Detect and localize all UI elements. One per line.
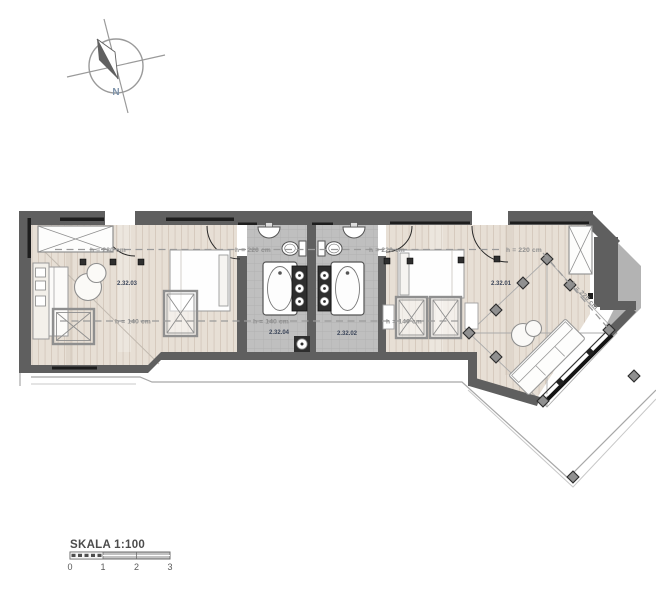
floor-drain <box>294 336 310 352</box>
h220-label-bath-right: h = 220 cm <box>369 247 405 254</box>
wardrobe-right <box>569 226 592 274</box>
side-table-circle-small <box>526 321 542 337</box>
room-label-2-32-04: 2.32.04 <box>269 330 290 336</box>
h140-label-room-right: h = 140 cm <box>386 319 422 326</box>
toilet <box>318 241 342 256</box>
scale-tick-3: 3 <box>167 562 172 572</box>
scale-title: SKALA 1:100 <box>70 539 145 551</box>
vanity-counter <box>33 263 68 339</box>
floor-plan-drawing: h = 220 cm h = 220 cm h = 220 cm h = 220… <box>0 0 656 592</box>
room-label-2-32-02: 2.32.02 <box>337 331 358 337</box>
bench-right <box>465 303 478 329</box>
scale-tick-0: 0 <box>67 562 72 572</box>
chest-bed-right-1 <box>396 297 427 338</box>
h220-label-bath-left: h = 220 cm <box>235 247 271 254</box>
scale-bar: SKALA 1:100 0 1 2 3 <box>67 539 172 572</box>
h140-label-room-left: h = 140 cm <box>115 319 151 326</box>
scale-tick-1: 1 <box>100 562 105 572</box>
faucet <box>266 223 273 228</box>
towel-cabinet <box>318 266 331 311</box>
north-label: N <box>112 87 119 98</box>
basin-circle-small <box>87 264 106 283</box>
floor-plan-page: h = 220 cm h = 220 cm h = 220 cm h = 220… <box>0 0 656 592</box>
bathtub <box>331 262 364 315</box>
toilet <box>282 241 306 256</box>
towel-cabinet <box>292 266 307 311</box>
h140-label-bath-left: h = 140 cm <box>253 319 289 326</box>
scale-tick-2: 2 <box>134 562 139 572</box>
north-arrow-icon: N <box>67 19 165 113</box>
chest-bed-right-2 <box>430 297 461 338</box>
bed-right <box>398 250 464 298</box>
terrace-contours <box>20 373 656 487</box>
room-label-2-32-03: 2.32.03 <box>117 281 138 287</box>
h220-label-room-right: h = 220 cm <box>506 247 542 254</box>
faucet <box>351 223 358 228</box>
h220-label-room-left: h = 220 cm <box>90 247 126 254</box>
chest-bed-left <box>164 291 197 336</box>
room-label-2-32-01: 2.32.01 <box>491 281 512 287</box>
